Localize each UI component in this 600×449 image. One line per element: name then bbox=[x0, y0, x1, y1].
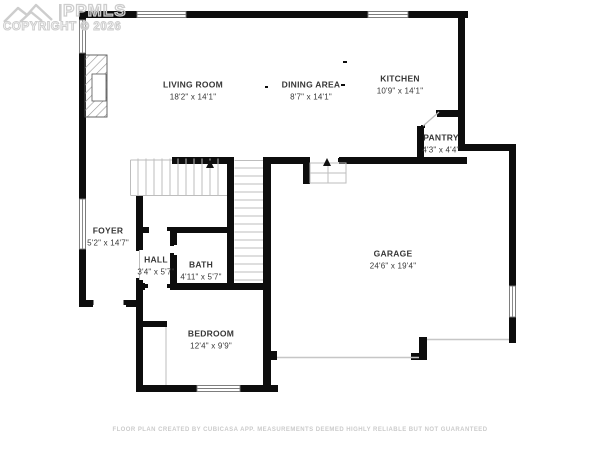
room-label-bedroom: BEDROOM 12'4" x 9'9" bbox=[188, 329, 234, 352]
room-label-living-room: LIVING ROOM 18'2" x 14'1" bbox=[163, 80, 223, 103]
room-dims: 24'6" x 19'4" bbox=[370, 261, 416, 272]
room-dims: 3'4" x 5'7" bbox=[137, 267, 174, 278]
pantry-door bbox=[423, 112, 439, 126]
floor-plan-page: LIVING ROOM 18'2" x 14'1" DINING AREA 8'… bbox=[0, 0, 600, 449]
room-name: HALL bbox=[137, 255, 174, 266]
room-name: BEDROOM bbox=[188, 329, 234, 340]
room-label-dining-area: DINING AREA 8'7" x 14'1" bbox=[282, 80, 341, 103]
room-name: KITCHEN bbox=[377, 74, 423, 85]
room-label-foyer: FOYER 5'2" x 14'7" bbox=[87, 226, 129, 249]
floor-plan-drawing bbox=[0, 0, 600, 449]
room-dims: 8'7" x 14'1" bbox=[282, 92, 341, 103]
room-name: GARAGE bbox=[370, 249, 416, 260]
footer-disclaimer: FLOOR PLAN CREATED BY CUBICASA APP. MEAS… bbox=[0, 427, 600, 433]
room-label-bath: BATH 4'11" x 5'7" bbox=[180, 260, 221, 283]
walls bbox=[79, 11, 516, 392]
room-dims: 4'11" x 5'7" bbox=[180, 272, 221, 283]
room-label-hall: HALL 3'4" x 5'7" bbox=[137, 255, 174, 278]
room-dims: 18'2" x 14'1" bbox=[163, 92, 223, 103]
room-name: FOYER bbox=[87, 226, 129, 237]
room-label-pantry: PANTRY 4'3" x 4'4" bbox=[422, 133, 459, 156]
room-name: BATH bbox=[180, 260, 221, 271]
room-dims: 4'3" x 4'4" bbox=[422, 145, 459, 156]
room-dims: 10'9" x 14'1" bbox=[377, 86, 423, 97]
garage-door-lines bbox=[277, 340, 509, 358]
fireplace bbox=[85, 55, 107, 117]
windows bbox=[80, 12, 516, 392]
room-name: PANTRY bbox=[422, 133, 459, 144]
room-label-kitchen: KITCHEN 10'9" x 14'1" bbox=[377, 74, 423, 97]
room-name: DINING AREA bbox=[282, 80, 341, 91]
room-dims: 5'2" x 14'7" bbox=[87, 238, 129, 249]
garage-entry-arrow bbox=[323, 158, 331, 166]
room-name: LIVING ROOM bbox=[163, 80, 223, 91]
room-label-garage: GARAGE 24'6" x 19'4" bbox=[370, 249, 416, 272]
room-dims: 12'4" x 9'9" bbox=[188, 341, 234, 352]
